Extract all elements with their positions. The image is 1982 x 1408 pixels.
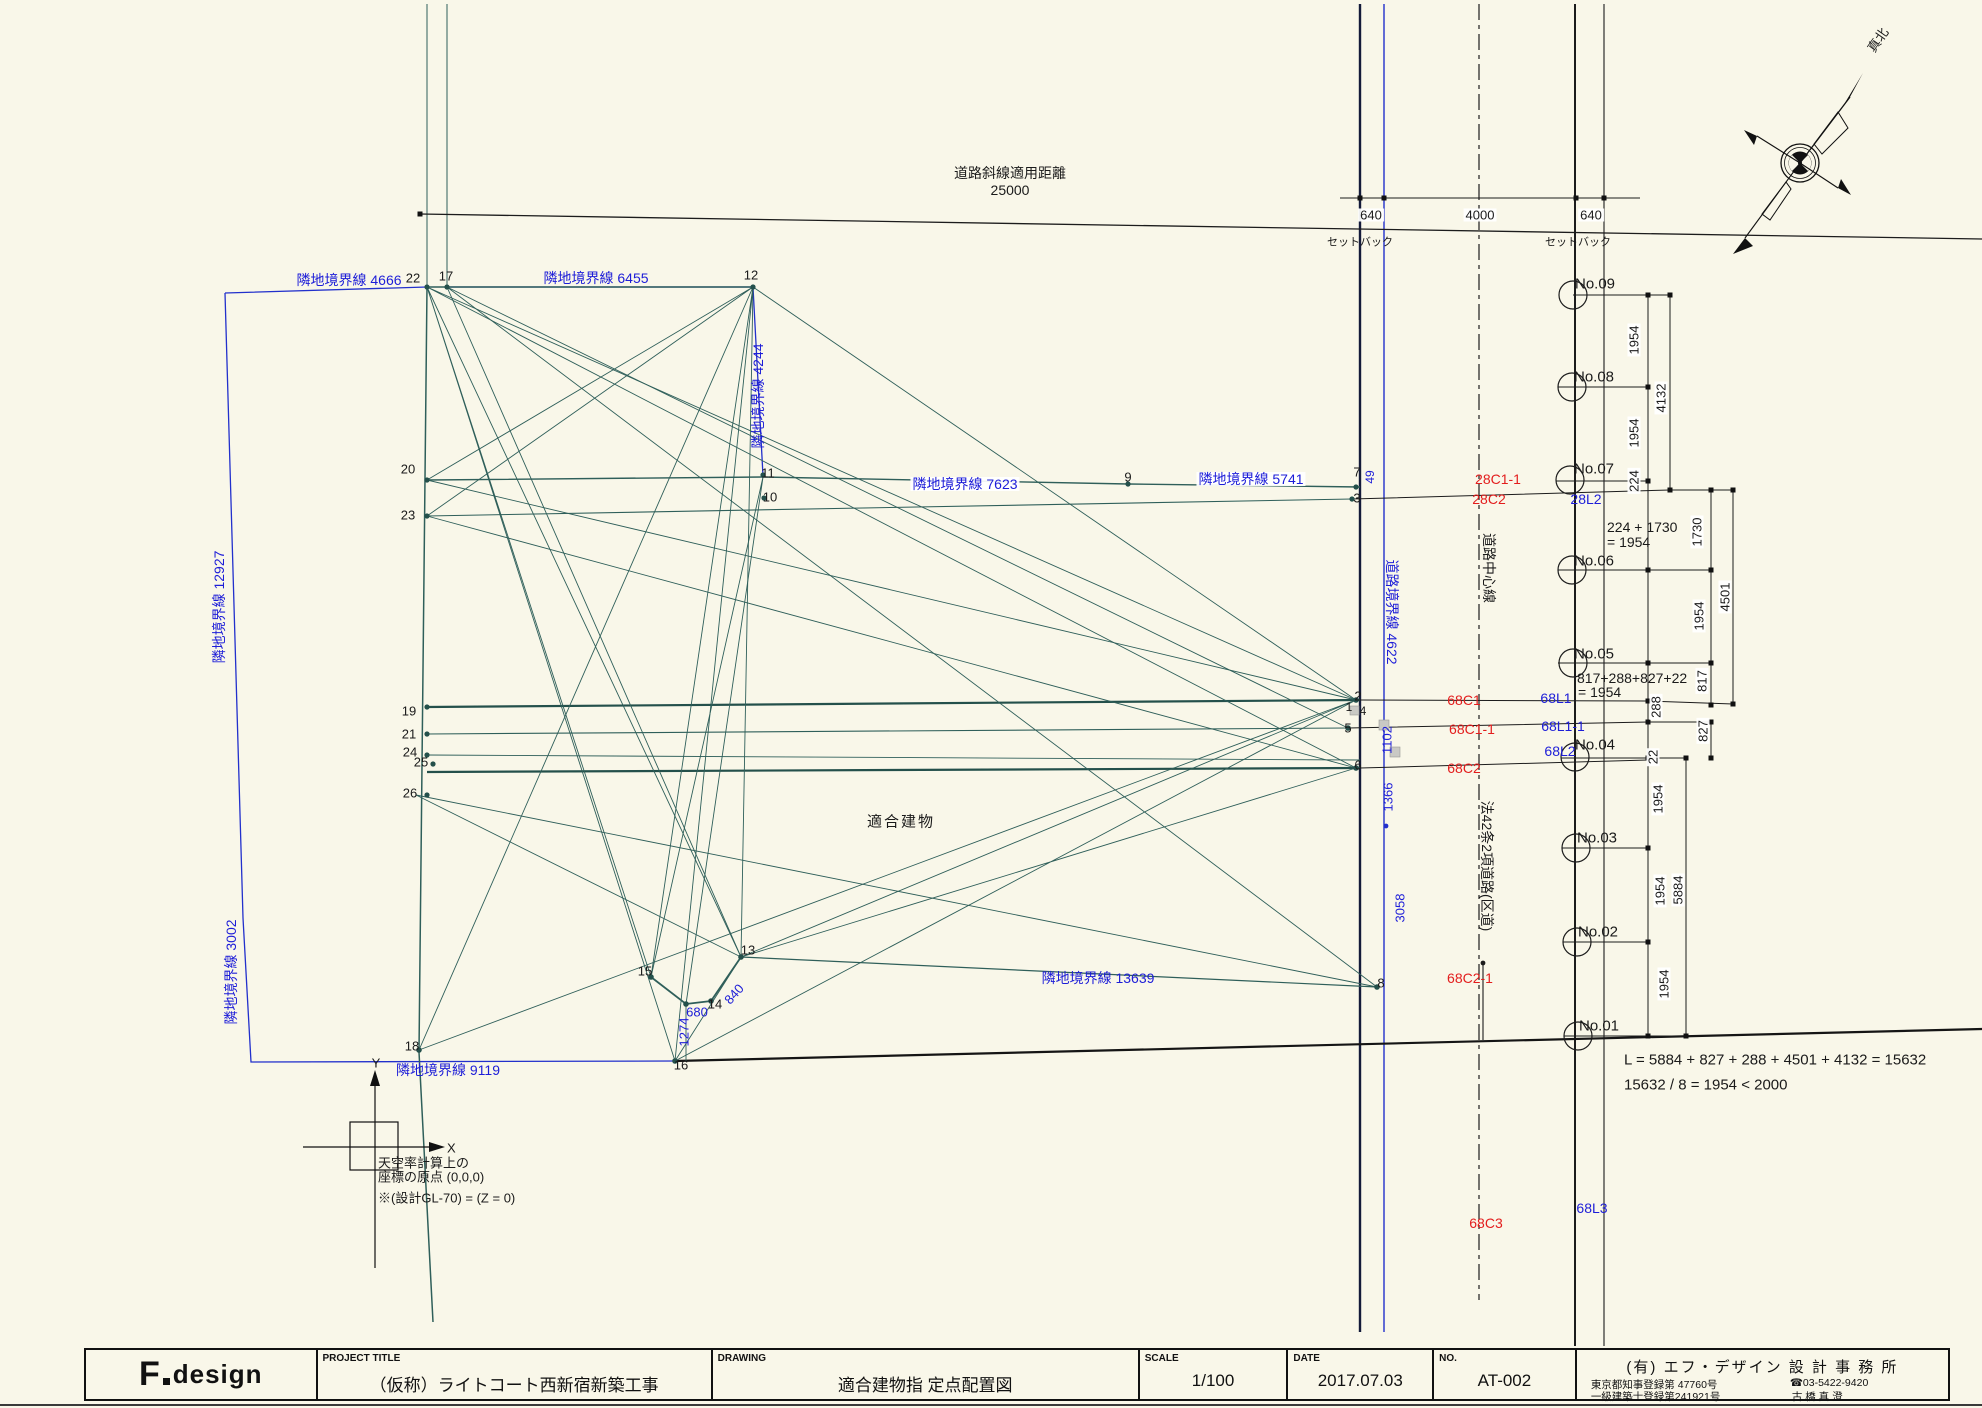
site-outline-lines: [419, 287, 1377, 1322]
road-slope-distance-label: 道路斜線適用距離: [954, 166, 1066, 180]
setback-label-right: セットバック: [1545, 238, 1611, 249]
road-lines: [420, 4, 1982, 1346]
point-3: 3: [1353, 492, 1360, 505]
drawing-sheet: 道路斜線適用距離250006404000640セットバックセットバック隣地境界線…: [0, 0, 1982, 1408]
origin-note-line1: 天空率計算上の: [378, 1157, 469, 1170]
axis-x-arrow: [429, 1142, 445, 1152]
calc-224-1730-line1: 224 + 1730: [1607, 520, 1677, 534]
dim-1954-e: 1954: [1654, 875, 1667, 908]
number-label: NO.: [1439, 1353, 1457, 1364]
number-value: AT-002: [1434, 1371, 1575, 1391]
company-logo: F design: [86, 1350, 316, 1399]
point-5: 5: [1344, 722, 1351, 735]
survey-no02: No.02: [1578, 925, 1618, 940]
formula-division: 15632 / 8 = 1954 < 2000: [1624, 1078, 1787, 1093]
sheet-bottom-border: [0, 1404, 1982, 1406]
point-13: 13: [741, 944, 755, 957]
axis-y-label: Y: [372, 1057, 381, 1070]
station-28c2: 28C2: [1472, 492, 1505, 506]
point-14: 14: [708, 998, 722, 1011]
point-16: 16: [674, 1059, 688, 1072]
boundary-3002: 隣地境界線 3002: [224, 919, 238, 1024]
dim-5884: 5884: [1672, 874, 1685, 907]
axis-x-label: X: [447, 1142, 456, 1155]
office-registration-2: 一級建築士登録第241921号: [1591, 1389, 1721, 1404]
dim-1954-b: 1954: [1628, 417, 1641, 450]
station-68l3: 68L3: [1576, 1201, 1607, 1215]
office-name: (有) エフ・デザイン 設 計 事 務 所: [1577, 1356, 1948, 1377]
station-68c1-1: 68C1-1: [1449, 722, 1495, 736]
cad-canvas: [0, 0, 1982, 1408]
point-10: 10: [763, 491, 777, 504]
dim-1954-a: 1954: [1628, 324, 1641, 357]
formula-total-length: L = 5884 + 827 + 288 + 4501 + 4132 = 156…: [1624, 1053, 1926, 1068]
station-68l1-1: 68L1-1: [1541, 719, 1585, 733]
calc-224-1730-line2: = 1954: [1607, 535, 1650, 549]
point-26: 26: [403, 787, 417, 800]
station-68c3: 68C3: [1469, 1216, 1502, 1230]
dim-1102: 1102: [1381, 726, 1394, 754]
scale-cell: SCALE 1/100: [1138, 1350, 1287, 1399]
station-28l2: 28L2: [1570, 492, 1601, 506]
dim-setback-left: 640: [1358, 209, 1384, 222]
dim-49: 49: [1364, 470, 1376, 483]
dim-1366: 1366: [1382, 783, 1395, 812]
origin-note-line3: ※(設計GL-70) = (Z = 0): [378, 1192, 515, 1205]
road-law42-label: 法42条2項道路(区道): [1480, 801, 1494, 932]
dim-3058: 3058: [1394, 894, 1407, 923]
survey-sightline-web: [416, 287, 1377, 1061]
axis-y-arrow: [370, 1070, 380, 1086]
drawing-title-value: 適合建物指 定点配置図: [713, 1371, 1138, 1396]
drawing-title-cell: DRAWING 適合建物指 定点配置図: [711, 1350, 1138, 1399]
point-11: 11: [761, 467, 775, 480]
dim-1274: 1274: [678, 1018, 691, 1047]
boundary-6455: 隣地境界線 6455: [543, 271, 648, 285]
office-phone: ☎03-5422-9420: [1790, 1377, 1868, 1389]
drawing-label: DRAWING: [718, 1353, 766, 1364]
point-19: 19: [402, 705, 416, 718]
dimension-lines: [1348, 295, 1733, 1036]
dim-1954-d: 1954: [1652, 783, 1665, 816]
road-centerline-label: 道路中心線: [1482, 533, 1496, 603]
building-label: 適合建物: [867, 815, 935, 830]
survey-no06: No.06: [1574, 554, 1614, 569]
station-68l1: 68L1: [1540, 691, 1571, 705]
project-title-label: PROJECT TITLE: [323, 1353, 401, 1364]
point-22: 22: [406, 272, 420, 285]
survey-no08: No.08: [1574, 370, 1614, 385]
point-20: 20: [401, 463, 415, 476]
boundary-7623: 隣地境界線 7623: [910, 477, 1019, 491]
dim-224: 224: [1628, 468, 1641, 494]
logo-design: design: [173, 1359, 263, 1390]
survey-no05: No.05: [1574, 647, 1614, 662]
boundary-12927: 隣地境界線 12927: [212, 551, 226, 664]
point-4: 4: [1360, 705, 1367, 717]
dim-817: 817: [1696, 668, 1709, 694]
boundary-9119: 隣地境界線 9119: [396, 1063, 500, 1077]
dim-288: 288: [1650, 694, 1663, 720]
boundary-4244: 隣地境界線 4244: [751, 343, 765, 448]
setback-label-left: セットバック: [1327, 238, 1393, 249]
dim-road-width: 4000: [1464, 209, 1497, 222]
dim-1954-c: 1954: [1693, 600, 1706, 633]
dim-1730: 1730: [1691, 516, 1704, 549]
calc-817-line2: = 1954: [1578, 685, 1621, 699]
date-label: DATE: [1293, 1353, 1319, 1364]
office-person: 古 橋 真 澄: [1792, 1389, 1843, 1404]
point-7: 7: [1353, 466, 1360, 479]
station-68l2: 68L2: [1544, 744, 1575, 758]
dim-22: 22: [1647, 748, 1660, 766]
station-28c1-1: 28C1-1: [1475, 472, 1521, 486]
date-value: 2017.07.03: [1288, 1371, 1432, 1391]
boundary-13639: 隣地境界線 13639: [1042, 971, 1155, 985]
origin-note-line2: 座標の原点 (0,0,0): [378, 1171, 484, 1184]
property-boundary-lines: [225, 287, 763, 1062]
point-15: 15: [638, 965, 652, 978]
company-info-cell: (有) エフ・デザイン 設 計 事 務 所 東京都知事登録第 47760号 ☎0…: [1575, 1350, 1948, 1399]
dim-1954-f: 1954: [1658, 968, 1671, 1001]
point-17: 17: [439, 270, 453, 283]
station-68c2-1: 68C2-1: [1447, 971, 1493, 985]
scale-value: 1/100: [1140, 1371, 1287, 1391]
project-title-value: （仮称）ライトコート西新宿新築工事: [318, 1371, 711, 1396]
dim-4501: 4501: [1719, 581, 1732, 614]
logo-f: F: [139, 1355, 160, 1394]
point-12: 12: [744, 269, 758, 282]
survey-no09: No.09: [1575, 277, 1615, 292]
date-cell: DATE 2017.07.03: [1286, 1350, 1432, 1399]
point-1: 1: [1346, 701, 1353, 713]
drawing-number-cell: NO. AT-002: [1432, 1350, 1575, 1399]
dim-4132: 4132: [1655, 382, 1668, 415]
dim-setback-right: 640: [1578, 209, 1604, 222]
survey-no07: No.07: [1574, 462, 1614, 477]
survey-no04: No.04: [1575, 738, 1615, 753]
boundary-4666: 隣地境界線 4666: [296, 273, 401, 287]
point-9: 9: [1124, 471, 1131, 484]
road-slope-distance-value: 25000: [991, 183, 1030, 197]
point-8: 8: [1377, 977, 1384, 990]
dim-827: 827: [1697, 718, 1710, 744]
road-slope-distance-line: [420, 214, 1982, 239]
calc-817-line1: 817+288+827+22: [1577, 671, 1687, 685]
survey-no01: No.01: [1579, 1019, 1619, 1034]
point-23: 23: [401, 509, 415, 522]
survey-no03: No.03: [1577, 831, 1617, 846]
point-21: 21: [402, 728, 416, 741]
point-18: 18: [405, 1040, 419, 1053]
title-block: F design PROJECT TITLE （仮称）ライトコート西新宿新築工事…: [84, 1348, 1950, 1401]
boundary-5741: 隣地境界線 5741: [1196, 472, 1305, 486]
scale-label: SCALE: [1145, 1353, 1179, 1364]
north-compass-icon: [1733, 73, 1863, 254]
dimension-markers: [418, 196, 1736, 1039]
point-25: 25: [414, 756, 428, 769]
project-title-cell: PROJECT TITLE （仮称）ライトコート西新宿新築工事: [316, 1350, 711, 1399]
station-68c1: 68C1: [1447, 693, 1480, 707]
logo-dot-icon: [163, 1378, 170, 1385]
point-6: 6: [1354, 759, 1361, 772]
vertex-dots: [416, 284, 1485, 1063]
road-boundary-4622: 道路境界線 4622: [1385, 559, 1399, 664]
station-68c2: 68C2: [1447, 761, 1480, 775]
point-2: 2: [1354, 690, 1361, 703]
